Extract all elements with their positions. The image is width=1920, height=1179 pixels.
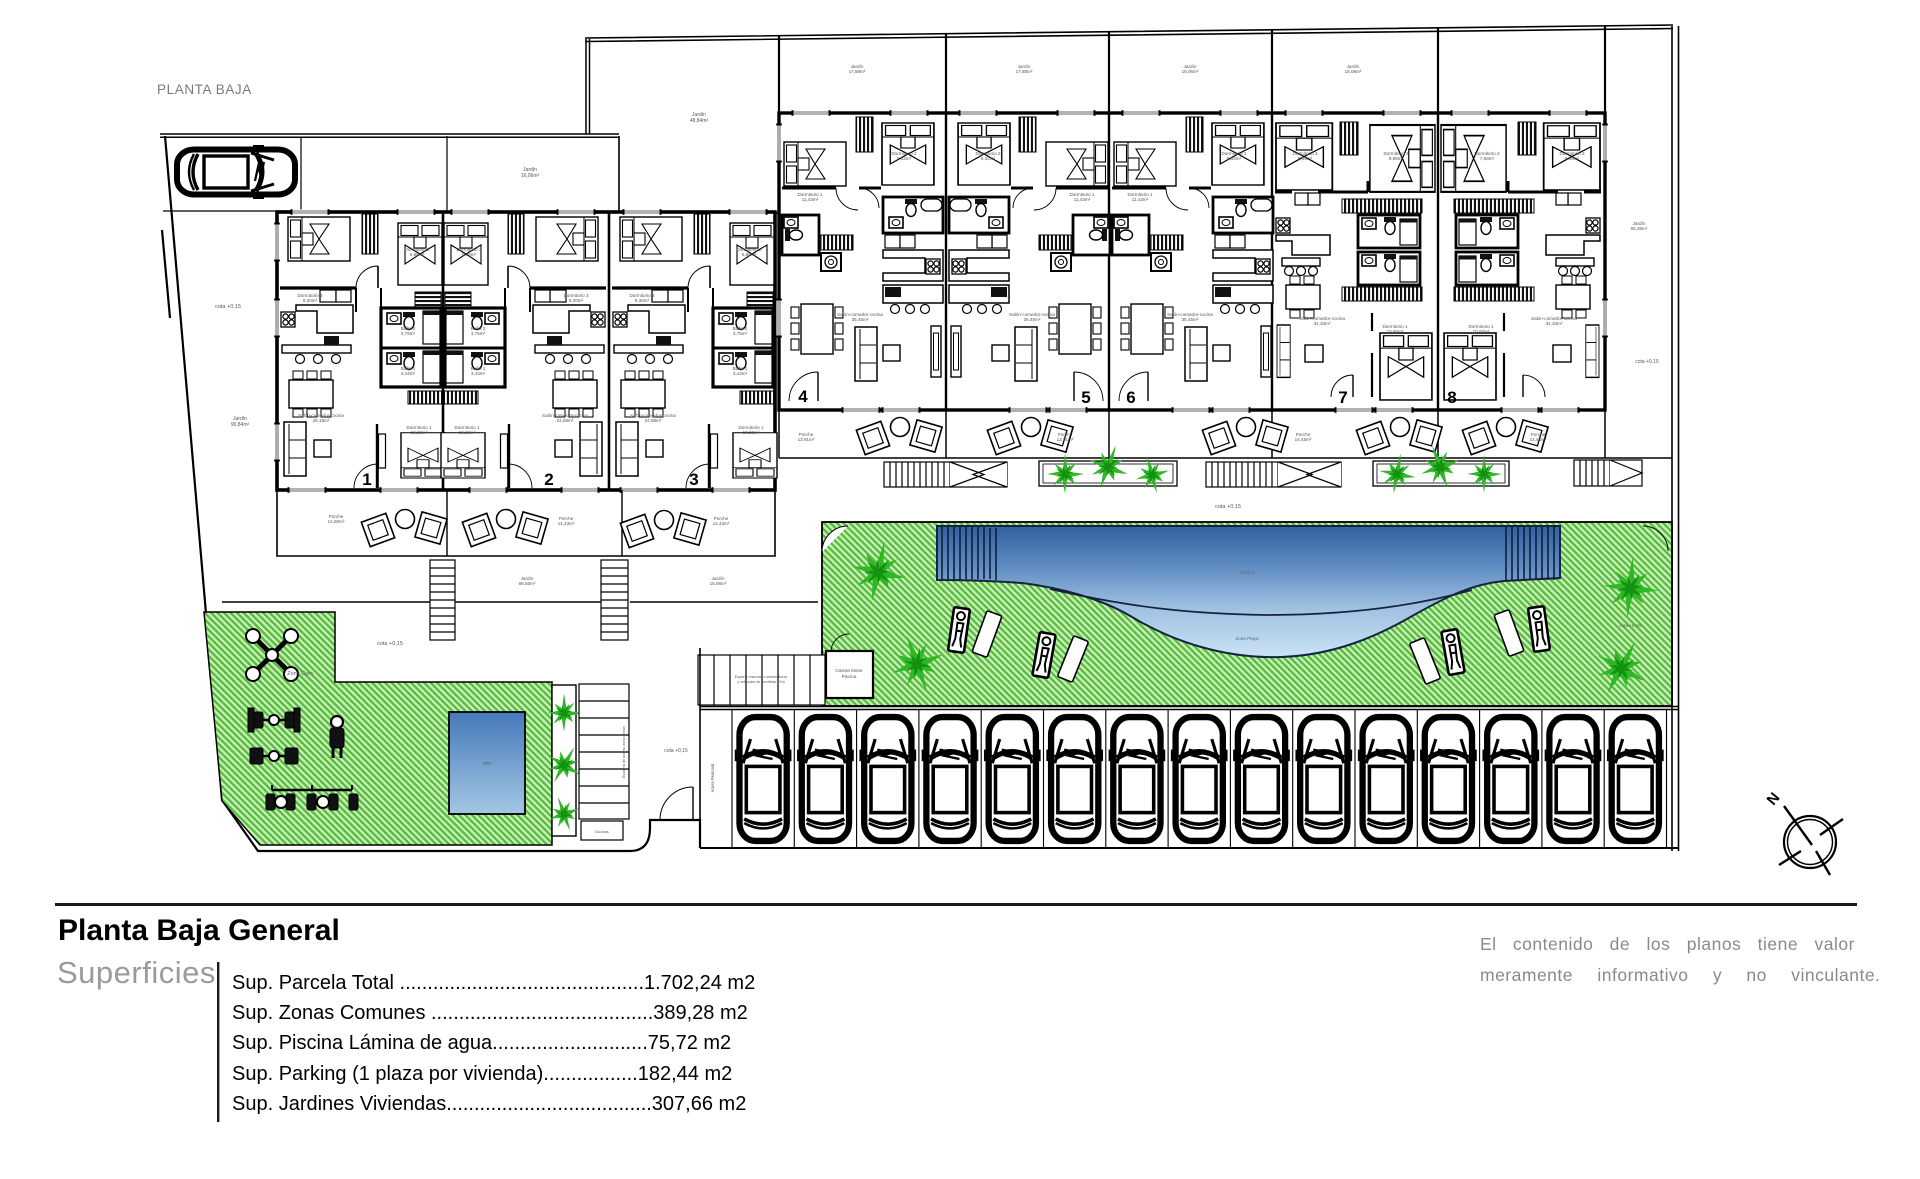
svg-text:cota +0,15: cota +0,15 xyxy=(1215,504,1241,510)
svg-text:35,45m²: 35,45m² xyxy=(1182,317,1199,322)
svg-text:Espacio reservado contenedores: Espacio reservado contenedores xyxy=(735,675,788,679)
svg-text:35,45m²: 35,45m² xyxy=(1024,317,1041,322)
svg-text:7: 7 xyxy=(1338,388,1347,407)
svg-text:El contenido de los planos tie: El contenido de los planos tiene valor xyxy=(1480,934,1855,954)
svg-text:24,88m²: 24,88m² xyxy=(557,418,574,423)
svg-text:cota +0,15: cota +0,15 xyxy=(664,748,688,754)
svg-text:15,68m²: 15,68m² xyxy=(710,581,727,586)
svg-text:3: 3 xyxy=(689,470,698,489)
svg-text:Zona Gym: Zona Gym xyxy=(287,671,313,677)
svg-text:65,36m²: 65,36m² xyxy=(1631,226,1648,231)
svg-text:cota +0,15: cota +0,15 xyxy=(377,641,403,647)
svg-text:meramente informativo y no vin: meramente informativo y no vinculante. xyxy=(1480,965,1880,985)
svg-text:Acera Peatonal: Acera Peatonal xyxy=(710,764,715,793)
svg-text:3,75m²: 3,75m² xyxy=(471,331,486,336)
svg-text:Planta Baja General: Planta Baja General xyxy=(58,914,340,947)
svg-text:5: 5 xyxy=(1081,388,1090,407)
svg-text:9,30m²: 9,30m² xyxy=(569,298,584,303)
svg-text:Piscina: Piscina xyxy=(842,674,857,679)
svg-text:6,32m²: 6,32m² xyxy=(897,156,912,161)
svg-text:Sup. Parking (1 plaza por vivi: Sup. Parking (1 plaza por vivienda).....… xyxy=(232,1063,732,1085)
svg-text:14,45m²: 14,45m² xyxy=(1530,437,1547,442)
svg-text:11,43m²: 11,43m² xyxy=(802,197,819,202)
svg-text:16,06m²: 16,06m² xyxy=(521,173,540,179)
svg-text:Superficies: Superficies xyxy=(57,955,216,990)
svg-text:34,33m²: 34,33m² xyxy=(1546,321,1563,326)
svg-text:6,88m²: 6,88m² xyxy=(742,252,757,257)
svg-text:17,88m²: 17,88m² xyxy=(849,69,866,74)
svg-text:14,45m²: 14,45m² xyxy=(1295,437,1312,442)
svg-text:4: 4 xyxy=(798,387,808,406)
svg-text:14,43m²: 14,43m² xyxy=(558,521,575,526)
svg-text:17,88m²: 17,88m² xyxy=(1016,69,1033,74)
svg-text:14,60m²: 14,60m² xyxy=(328,519,345,524)
svg-text:9,30m²: 9,30m² xyxy=(635,298,650,303)
svg-text:3,44m²: 3,44m² xyxy=(471,371,486,376)
svg-text:3,44m²: 3,44m² xyxy=(401,371,416,376)
svg-text:11,43m²: 11,43m² xyxy=(1132,197,1149,202)
svg-text:8: 8 xyxy=(1447,388,1456,407)
svg-text:Duchas: Duchas xyxy=(595,829,609,834)
svg-text:10,60m²: 10,60m² xyxy=(1473,329,1490,334)
svg-text:24,88m²: 24,88m² xyxy=(645,418,662,423)
svg-text:6,32m²: 6,32m² xyxy=(981,156,996,161)
svg-text:7,88m²: 7,88m² xyxy=(1480,156,1495,161)
svg-text:34,33m²: 34,33m² xyxy=(1314,321,1331,326)
svg-text:Escalera de acceso zona comun: Escalera de acceso zona comun xyxy=(622,726,626,778)
svg-text:48,84m²: 48,84m² xyxy=(690,118,709,124)
svg-text:Sup. Parcela Total ...........: Sup. Parcela Total .....................… xyxy=(232,972,755,994)
svg-text:10,60m²: 10,60m² xyxy=(1387,329,1404,334)
svg-text:2: 2 xyxy=(544,470,553,489)
svg-text:13,91m²: 13,91m² xyxy=(1057,437,1074,442)
svg-text:8,56m²: 8,56m² xyxy=(1298,156,1313,161)
svg-text:14,43m²: 14,43m² xyxy=(713,521,730,526)
svg-text:13,91m²: 13,91m² xyxy=(798,437,815,442)
svg-text:10,59m²: 10,59m² xyxy=(743,430,760,435)
svg-text:Zona Playa: Zona Playa xyxy=(1235,636,1259,641)
svg-text:Sup. Jardines Viviendas.......: Sup. Jardines Viviendas.................… xyxy=(232,1093,746,1115)
svg-text:11,43m²: 11,43m² xyxy=(1074,197,1091,202)
svg-text:6: 6 xyxy=(1126,388,1135,407)
svg-text:3,44m²: 3,44m² xyxy=(733,371,748,376)
svg-text:90,84m²: 90,84m² xyxy=(231,422,250,428)
svg-text:Caseta Motor: Caseta Motor xyxy=(835,668,863,673)
svg-text:6,88m²: 6,88m² xyxy=(410,252,425,257)
svg-text:10,59m²: 10,59m² xyxy=(459,430,476,435)
svg-text:28,18m²: 28,18m² xyxy=(313,418,330,423)
svg-text:6,32m²: 6,32m² xyxy=(1227,156,1242,161)
svg-text:PLANTA BAJA: PLANTA BAJA xyxy=(157,82,252,97)
svg-text:6,88m²: 6,88m² xyxy=(462,252,477,257)
svg-text:16,06m²: 16,06m² xyxy=(1345,69,1362,74)
svg-text:88,56m²: 88,56m² xyxy=(519,581,536,586)
svg-text:y vehículos de movilidad (2m): y vehículos de movilidad (2m) xyxy=(737,680,785,684)
svg-text:9,30m²: 9,30m² xyxy=(303,298,318,303)
svg-text:8,56m²: 8,56m² xyxy=(1565,156,1580,161)
svg-text:10,59m²: 10,59m² xyxy=(411,430,428,435)
svg-text:cota +0,15: cota +0,15 xyxy=(215,304,241,310)
svg-text:SPA: SPA xyxy=(483,761,493,766)
svg-text:Piscina: Piscina xyxy=(1240,570,1255,575)
svg-text:9,88m²: 9,88m² xyxy=(1389,156,1404,161)
svg-text:35,45m²: 35,45m² xyxy=(852,317,869,322)
svg-text:3,75m²: 3,75m² xyxy=(401,331,416,336)
svg-text:1: 1 xyxy=(362,470,371,489)
svg-text:cota +0,15: cota +0,15 xyxy=(1619,623,1641,628)
svg-text:16,06m²: 16,06m² xyxy=(1182,69,1199,74)
svg-text:Sup. Zonas Comunes ...........: Sup. Zonas Comunes .....................… xyxy=(232,1002,748,1024)
svg-text:cota +0,15: cota +0,15 xyxy=(1635,359,1659,365)
svg-text:Sup. Piscina Lámina de agua...: Sup. Piscina Lámina de agua.............… xyxy=(232,1032,731,1054)
svg-text:3,75m²: 3,75m² xyxy=(733,331,748,336)
